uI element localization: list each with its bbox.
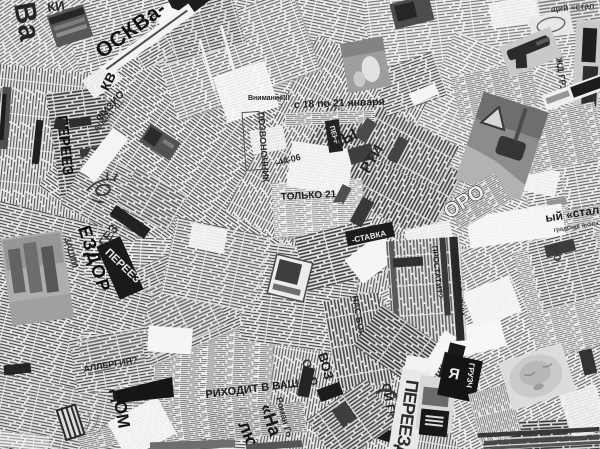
svg-text:Ва: Ва: [7, 0, 46, 43]
svg-text:Внимание!!!: Внимание!!!: [248, 95, 290, 102]
svg-text:КИ: КИ: [46, 0, 65, 15]
